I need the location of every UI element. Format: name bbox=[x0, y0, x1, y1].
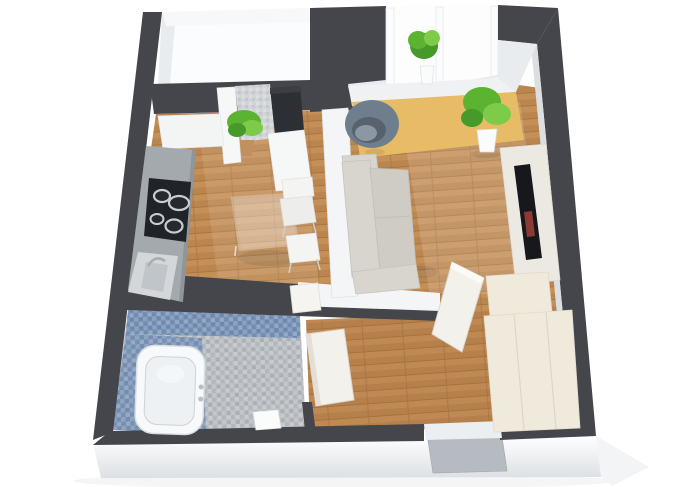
burner-4 bbox=[166, 220, 183, 233]
burner-3 bbox=[151, 214, 164, 224]
armchair-cushion bbox=[355, 125, 377, 141]
burner-1 bbox=[154, 190, 170, 202]
sill-plant-foliage-light bbox=[424, 30, 440, 46]
open-door-small bbox=[290, 283, 321, 313]
upper-closet bbox=[486, 272, 552, 316]
bathtub bbox=[134, 345, 205, 435]
entry-threshold bbox=[424, 421, 502, 440]
sill-plant-pot bbox=[420, 66, 434, 84]
stool-seat bbox=[286, 233, 320, 263]
floor-plant-foliage-light bbox=[483, 103, 511, 125]
plant-pot-clay bbox=[240, 140, 254, 156]
floor-plan-scene bbox=[0, 0, 690, 487]
entry-door bbox=[428, 437, 507, 473]
bath-mat bbox=[253, 410, 281, 430]
burner-2 bbox=[169, 196, 189, 210]
floor-plant-foliage-dark bbox=[461, 109, 483, 127]
upper-cabinet bbox=[158, 114, 224, 149]
chair-backrest bbox=[282, 177, 314, 199]
floor-plant-pot bbox=[477, 129, 497, 152]
wardrobe-closet bbox=[484, 310, 580, 432]
floor-plan-image bbox=[0, 0, 690, 487]
chair-seat bbox=[280, 196, 316, 226]
window-jamb-right bbox=[491, 6, 498, 82]
plant-foliage-dark bbox=[228, 123, 246, 137]
table-leg-1 bbox=[235, 246, 236, 256]
